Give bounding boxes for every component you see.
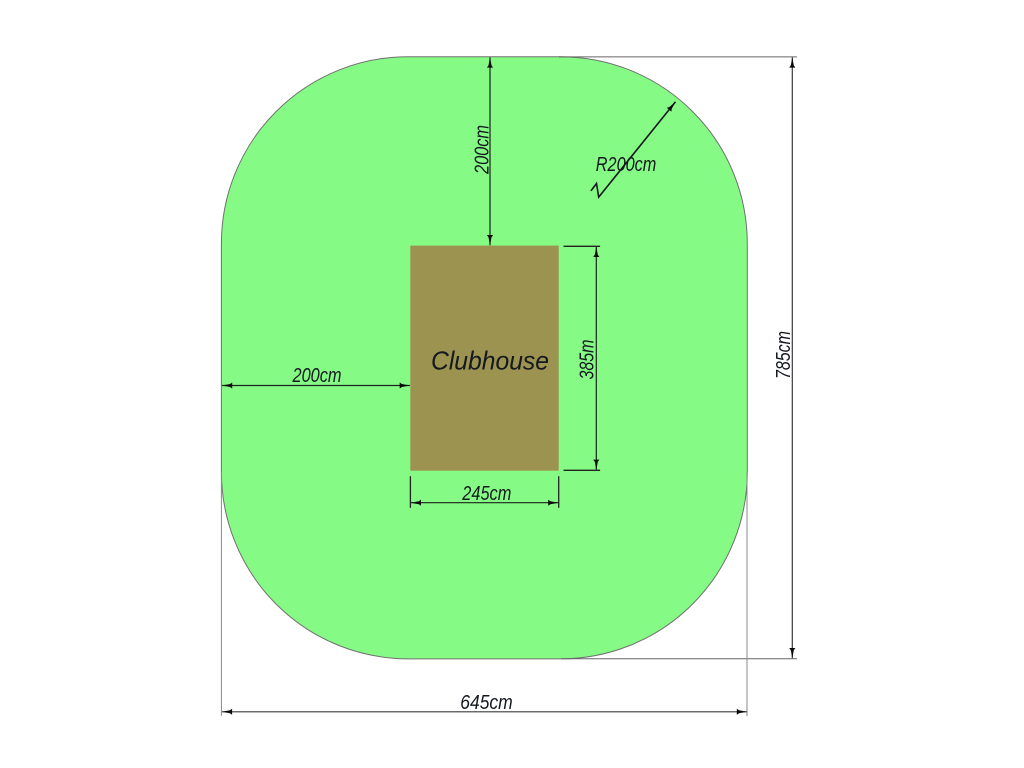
svg-text:385m: 385m <box>577 340 599 380</box>
svg-text:200cm: 200cm <box>292 365 342 387</box>
svg-text:200cm: 200cm <box>471 125 493 175</box>
svg-text:645cm: 645cm <box>460 692 513 714</box>
svg-text:785cm: 785cm <box>773 331 795 379</box>
svg-text:245cm: 245cm <box>461 483 511 505</box>
svg-text:R200cm: R200cm <box>596 154 657 176</box>
svg-text:Clubhouse: Clubhouse <box>431 345 549 375</box>
